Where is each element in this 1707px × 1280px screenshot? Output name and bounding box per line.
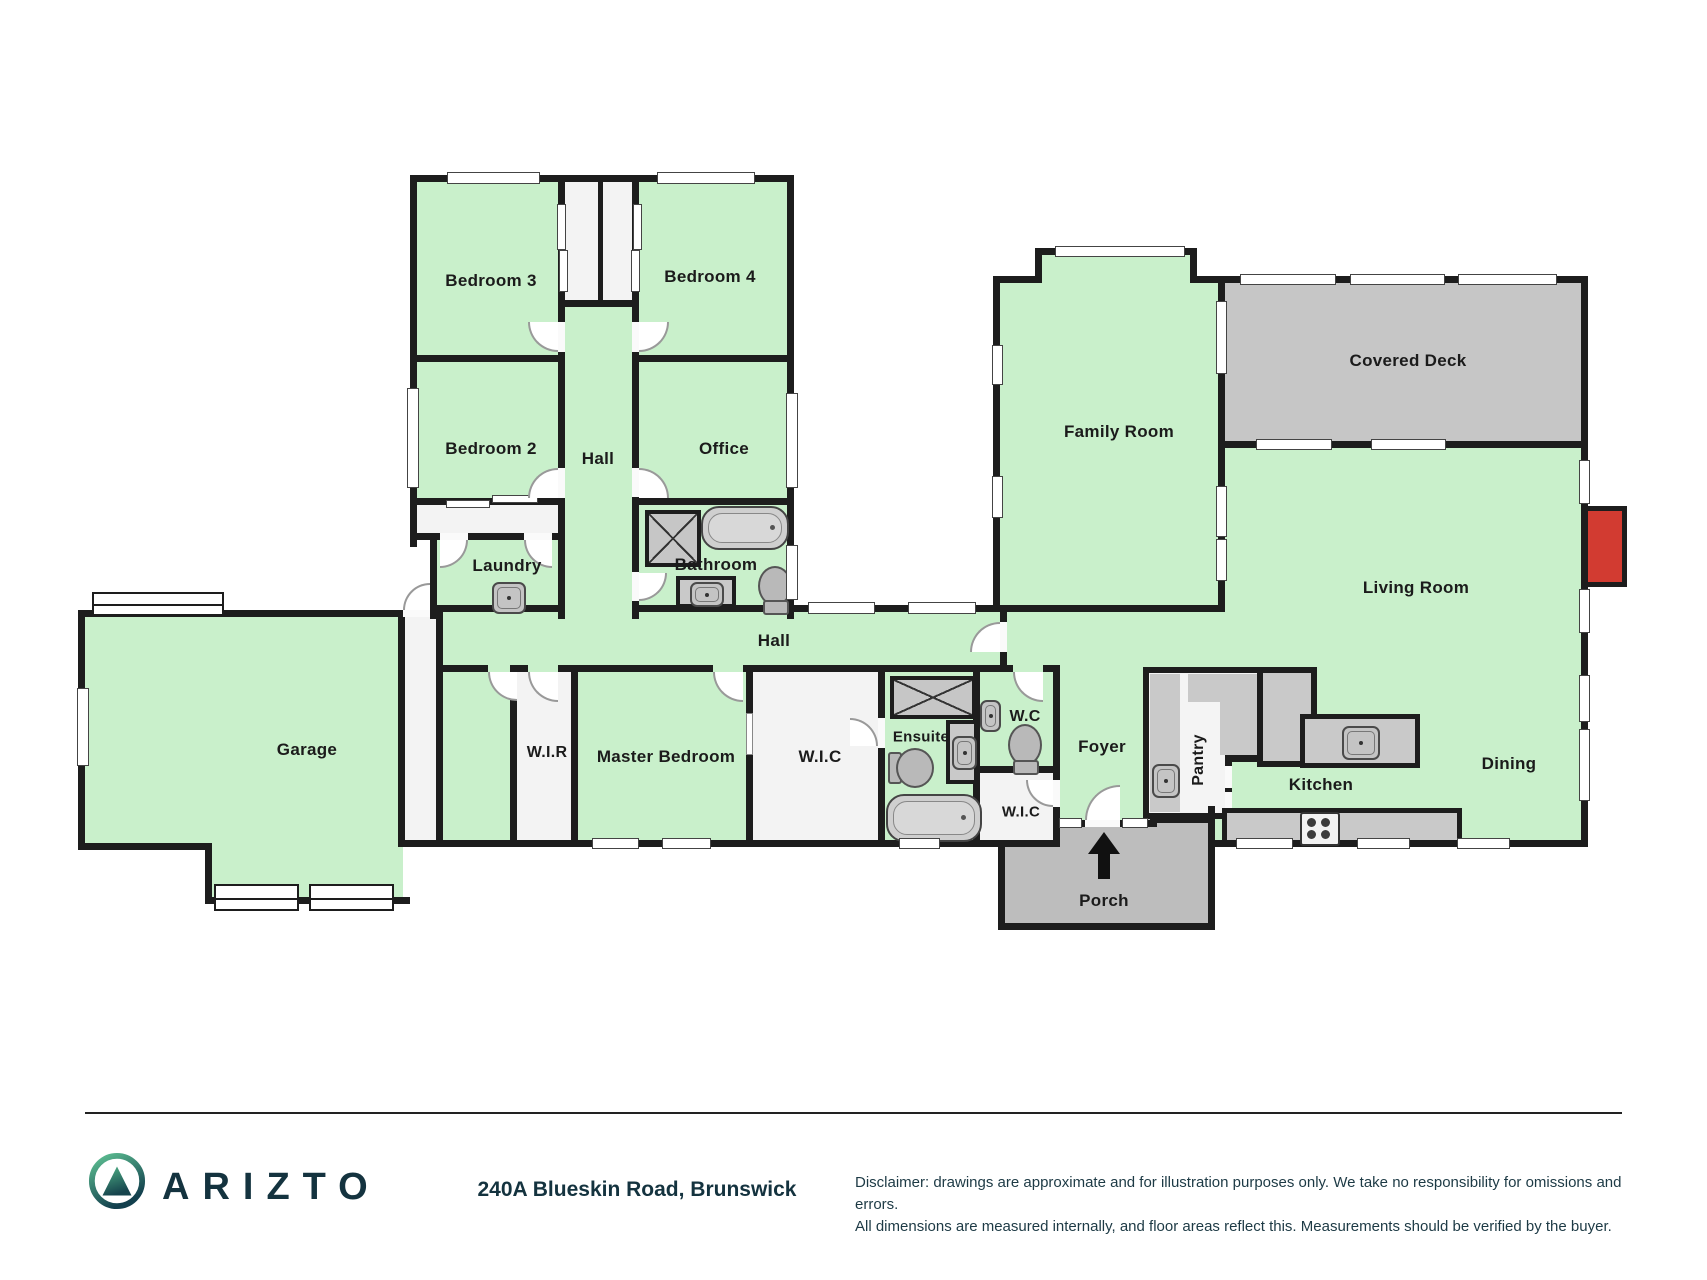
window xyxy=(407,388,419,488)
wall xyxy=(558,498,565,619)
stove xyxy=(1300,812,1340,846)
front-door-gap xyxy=(1085,820,1120,827)
window xyxy=(786,545,798,600)
pantry-counter-right xyxy=(1220,702,1257,755)
label-foyer: Foyer xyxy=(1078,737,1126,757)
door-gap xyxy=(403,610,430,617)
label-wic: W.I.C xyxy=(798,747,841,767)
label-kitchen: Kitchen xyxy=(1289,775,1353,795)
wall xyxy=(746,665,753,713)
wall xyxy=(1208,806,1215,930)
window xyxy=(1236,838,1293,849)
door-gap xyxy=(632,572,639,601)
label-office: Office xyxy=(699,439,749,459)
pantry-sink xyxy=(1152,764,1180,798)
label-pantry: Pantry xyxy=(1190,734,1208,786)
ensuite-shower xyxy=(890,676,976,719)
wall xyxy=(878,665,885,718)
window xyxy=(899,838,940,849)
sidelight-window xyxy=(1122,818,1148,828)
pantry-counter-top xyxy=(1188,674,1257,702)
window xyxy=(1579,460,1590,504)
footer-divider xyxy=(85,1112,1622,1114)
wall xyxy=(517,665,528,672)
wall xyxy=(558,352,565,468)
slider-door xyxy=(746,713,753,755)
window xyxy=(1458,274,1557,285)
label-wc: W.C xyxy=(1009,708,1040,726)
bathroom-sink xyxy=(690,582,724,607)
wall xyxy=(205,843,212,904)
closet-slider xyxy=(631,250,640,292)
wall xyxy=(1150,816,1215,823)
room-family-floor xyxy=(1000,283,1218,612)
wall xyxy=(565,300,639,307)
label-laundry: Laundry xyxy=(472,556,541,576)
window xyxy=(1579,729,1590,801)
hall-main-floor xyxy=(455,610,1007,672)
window xyxy=(1055,246,1185,257)
island-sink xyxy=(1342,726,1380,760)
label-covered-deck: Covered Deck xyxy=(1350,351,1467,371)
window xyxy=(662,838,711,849)
window xyxy=(447,172,540,184)
entry-arrow-icon xyxy=(1088,832,1120,854)
bathroom-toilet-tank xyxy=(763,600,789,615)
wall xyxy=(743,665,973,672)
wall xyxy=(398,610,405,847)
door-gap xyxy=(1000,622,1007,652)
door-gap xyxy=(558,322,565,352)
window xyxy=(1350,274,1445,285)
room-garage-floor xyxy=(85,617,403,843)
door-gap xyxy=(440,533,468,540)
slider-door xyxy=(1216,539,1227,581)
wall xyxy=(410,355,565,362)
corridor-floor xyxy=(443,612,517,840)
closet-a-floor xyxy=(565,182,598,300)
ensuite-bathtub xyxy=(886,794,982,842)
ensuite-sink xyxy=(952,736,977,770)
family-bump-floor xyxy=(1042,255,1197,283)
closet-slider xyxy=(633,204,642,250)
label-bedroom2: Bedroom 2 xyxy=(445,439,537,459)
disclaimer-line2: All dimensions are measured internally, … xyxy=(855,1218,1612,1235)
garage-bay-window xyxy=(214,884,299,911)
slider-door xyxy=(1216,301,1227,374)
window xyxy=(1457,838,1510,849)
wall xyxy=(632,497,639,572)
entry-arrow-icon xyxy=(1098,853,1110,879)
door-gap xyxy=(558,468,565,498)
label-ensuite: Ensuite xyxy=(893,729,949,746)
wall xyxy=(571,665,578,847)
label-family-room: Family Room xyxy=(1064,422,1174,442)
wall xyxy=(436,612,443,847)
label-bedroom3: Bedroom 3 xyxy=(445,271,537,291)
window xyxy=(657,172,755,184)
floorplan-page: Bedroom 3 Bedroom 4 Bedroom 2 Hall Offic… xyxy=(0,0,1707,1280)
closet-slider xyxy=(559,250,568,292)
label-bathroom: Bathroom xyxy=(675,555,758,575)
window xyxy=(1579,675,1590,722)
wall xyxy=(998,847,1005,930)
window xyxy=(1357,838,1410,849)
label-garage: Garage xyxy=(277,740,337,760)
door-gap xyxy=(524,533,552,540)
garage-bay-window xyxy=(309,884,394,911)
window xyxy=(1256,439,1332,450)
label-porch: Porch xyxy=(1079,891,1129,911)
window xyxy=(908,602,976,614)
closet-b-floor xyxy=(598,182,632,300)
wall xyxy=(632,352,639,468)
window xyxy=(77,688,89,766)
window xyxy=(1371,439,1446,450)
door-arc xyxy=(403,583,430,610)
garage-bay-window xyxy=(92,592,224,616)
laundry-sink xyxy=(492,582,526,614)
bathtub xyxy=(701,506,789,550)
store-strip-floor xyxy=(405,617,437,840)
wall xyxy=(998,923,1215,930)
wc-toilet-tank xyxy=(1013,760,1039,775)
wall xyxy=(1053,665,1060,780)
pantry-door-gap xyxy=(1225,766,1232,788)
kitchen-counter-bottom xyxy=(1222,808,1462,840)
arizto-logo-icon xyxy=(88,1152,146,1210)
property-address: 240A Blueskin Road, Brunswick xyxy=(478,1178,797,1202)
window xyxy=(1579,589,1590,633)
slider-door xyxy=(1216,486,1227,537)
label-living-room: Living Room xyxy=(1363,578,1469,598)
closet-slider xyxy=(446,500,490,508)
disclaimer-line1: Disclaimer: drawings are approximate and… xyxy=(855,1174,1621,1213)
wall xyxy=(78,843,212,850)
label-hall-north: Hall xyxy=(582,449,614,469)
door-gap xyxy=(1053,780,1060,807)
brand-name: ARIZTO xyxy=(162,1166,381,1209)
wall xyxy=(443,665,488,672)
window xyxy=(1240,274,1336,285)
fireplace xyxy=(1588,511,1622,582)
door-gap xyxy=(632,468,639,497)
window xyxy=(592,838,639,849)
window xyxy=(992,345,1003,385)
wall xyxy=(746,755,753,847)
door-gap xyxy=(878,718,885,748)
wall xyxy=(558,665,713,672)
wall xyxy=(878,748,885,847)
wall xyxy=(993,605,1225,612)
wall xyxy=(598,182,603,300)
window xyxy=(786,393,798,488)
sidelight-window xyxy=(1059,818,1082,828)
label-master-bedroom: Master Bedroom xyxy=(597,747,735,767)
door-gap xyxy=(632,322,639,352)
window xyxy=(808,602,875,614)
label-dining: Dining xyxy=(1482,754,1537,774)
disclaimer-text: Disclaimer: drawings are approximate and… xyxy=(855,1172,1635,1237)
label-bedroom4: Bedroom 4 xyxy=(664,267,756,287)
wall xyxy=(632,355,794,362)
label-wir: W.I.R xyxy=(527,744,568,762)
wall xyxy=(993,276,1000,612)
label-wic2: W.I.C xyxy=(1002,804,1040,821)
wall xyxy=(632,498,794,505)
ensuite-toilet xyxy=(896,748,934,788)
label-hall-main: Hall xyxy=(758,631,790,651)
wc-sink xyxy=(980,700,1001,732)
wall xyxy=(1581,276,1588,448)
window xyxy=(992,476,1003,518)
closet-slider xyxy=(557,204,566,250)
